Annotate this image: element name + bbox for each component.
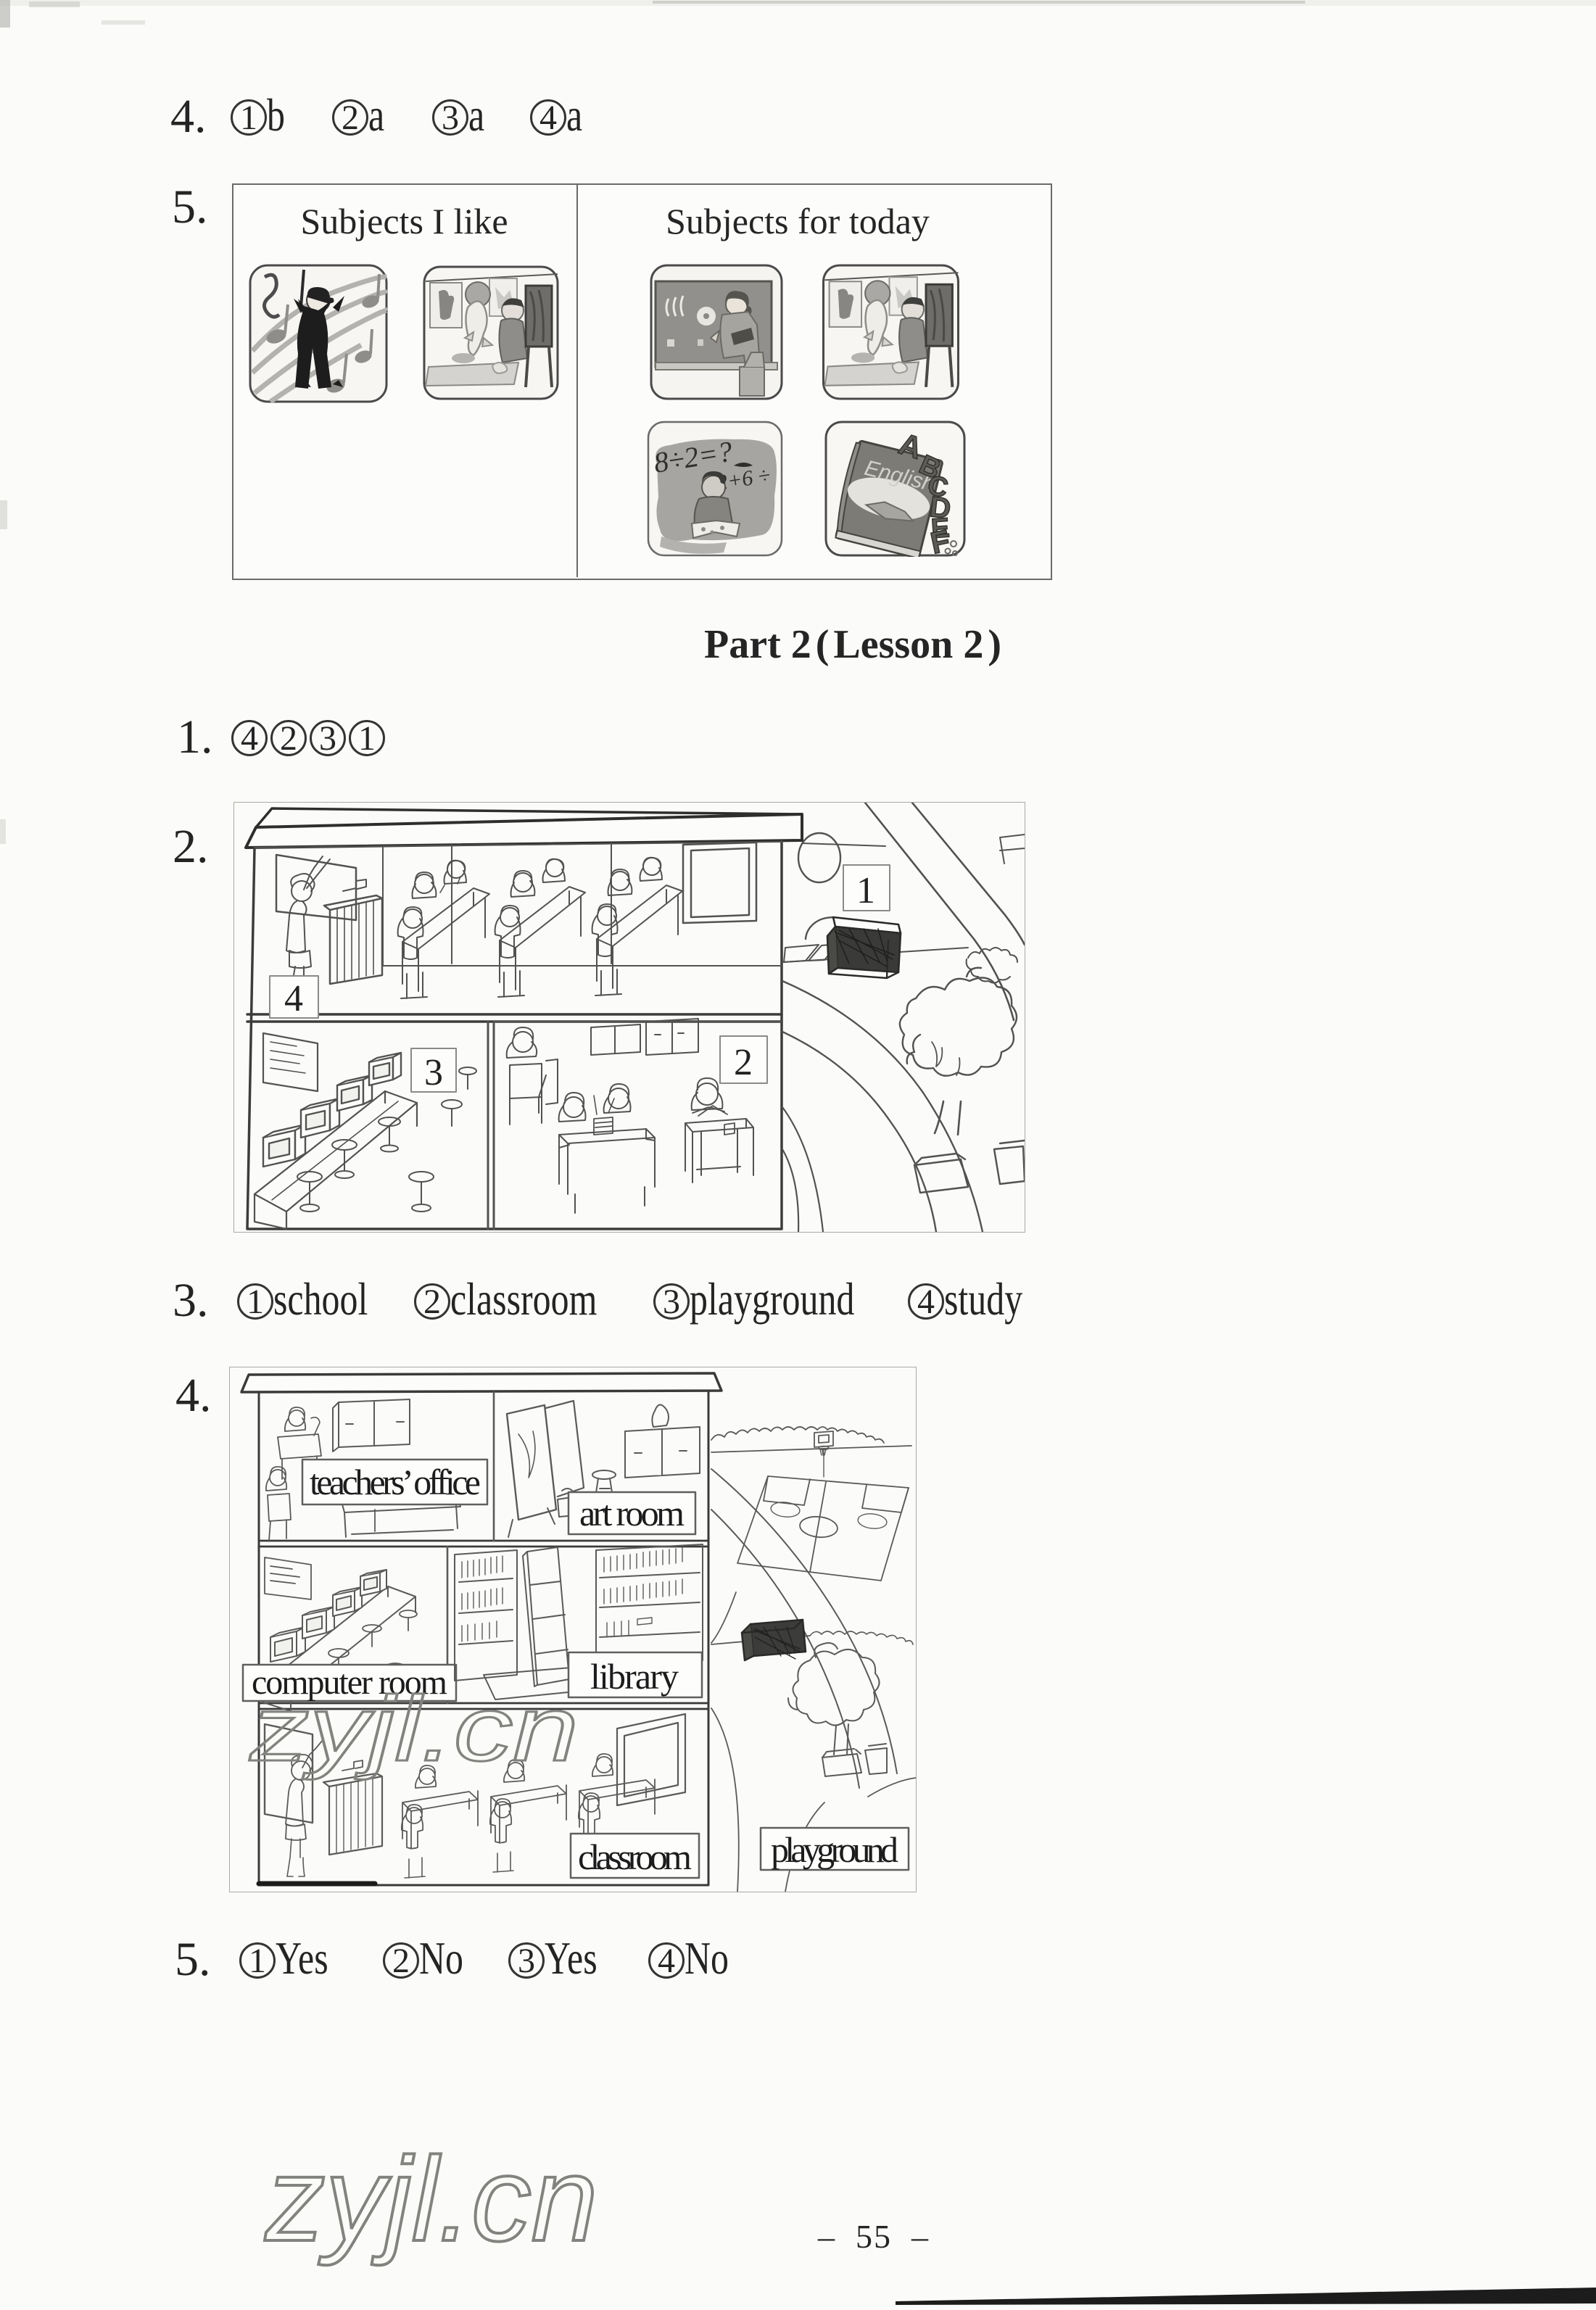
svg-text:zyjl.cn: zyjl.cn bbox=[249, 1677, 579, 1780]
svg-text:zyjl.cn: zyjl.cn bbox=[265, 2132, 598, 2266]
